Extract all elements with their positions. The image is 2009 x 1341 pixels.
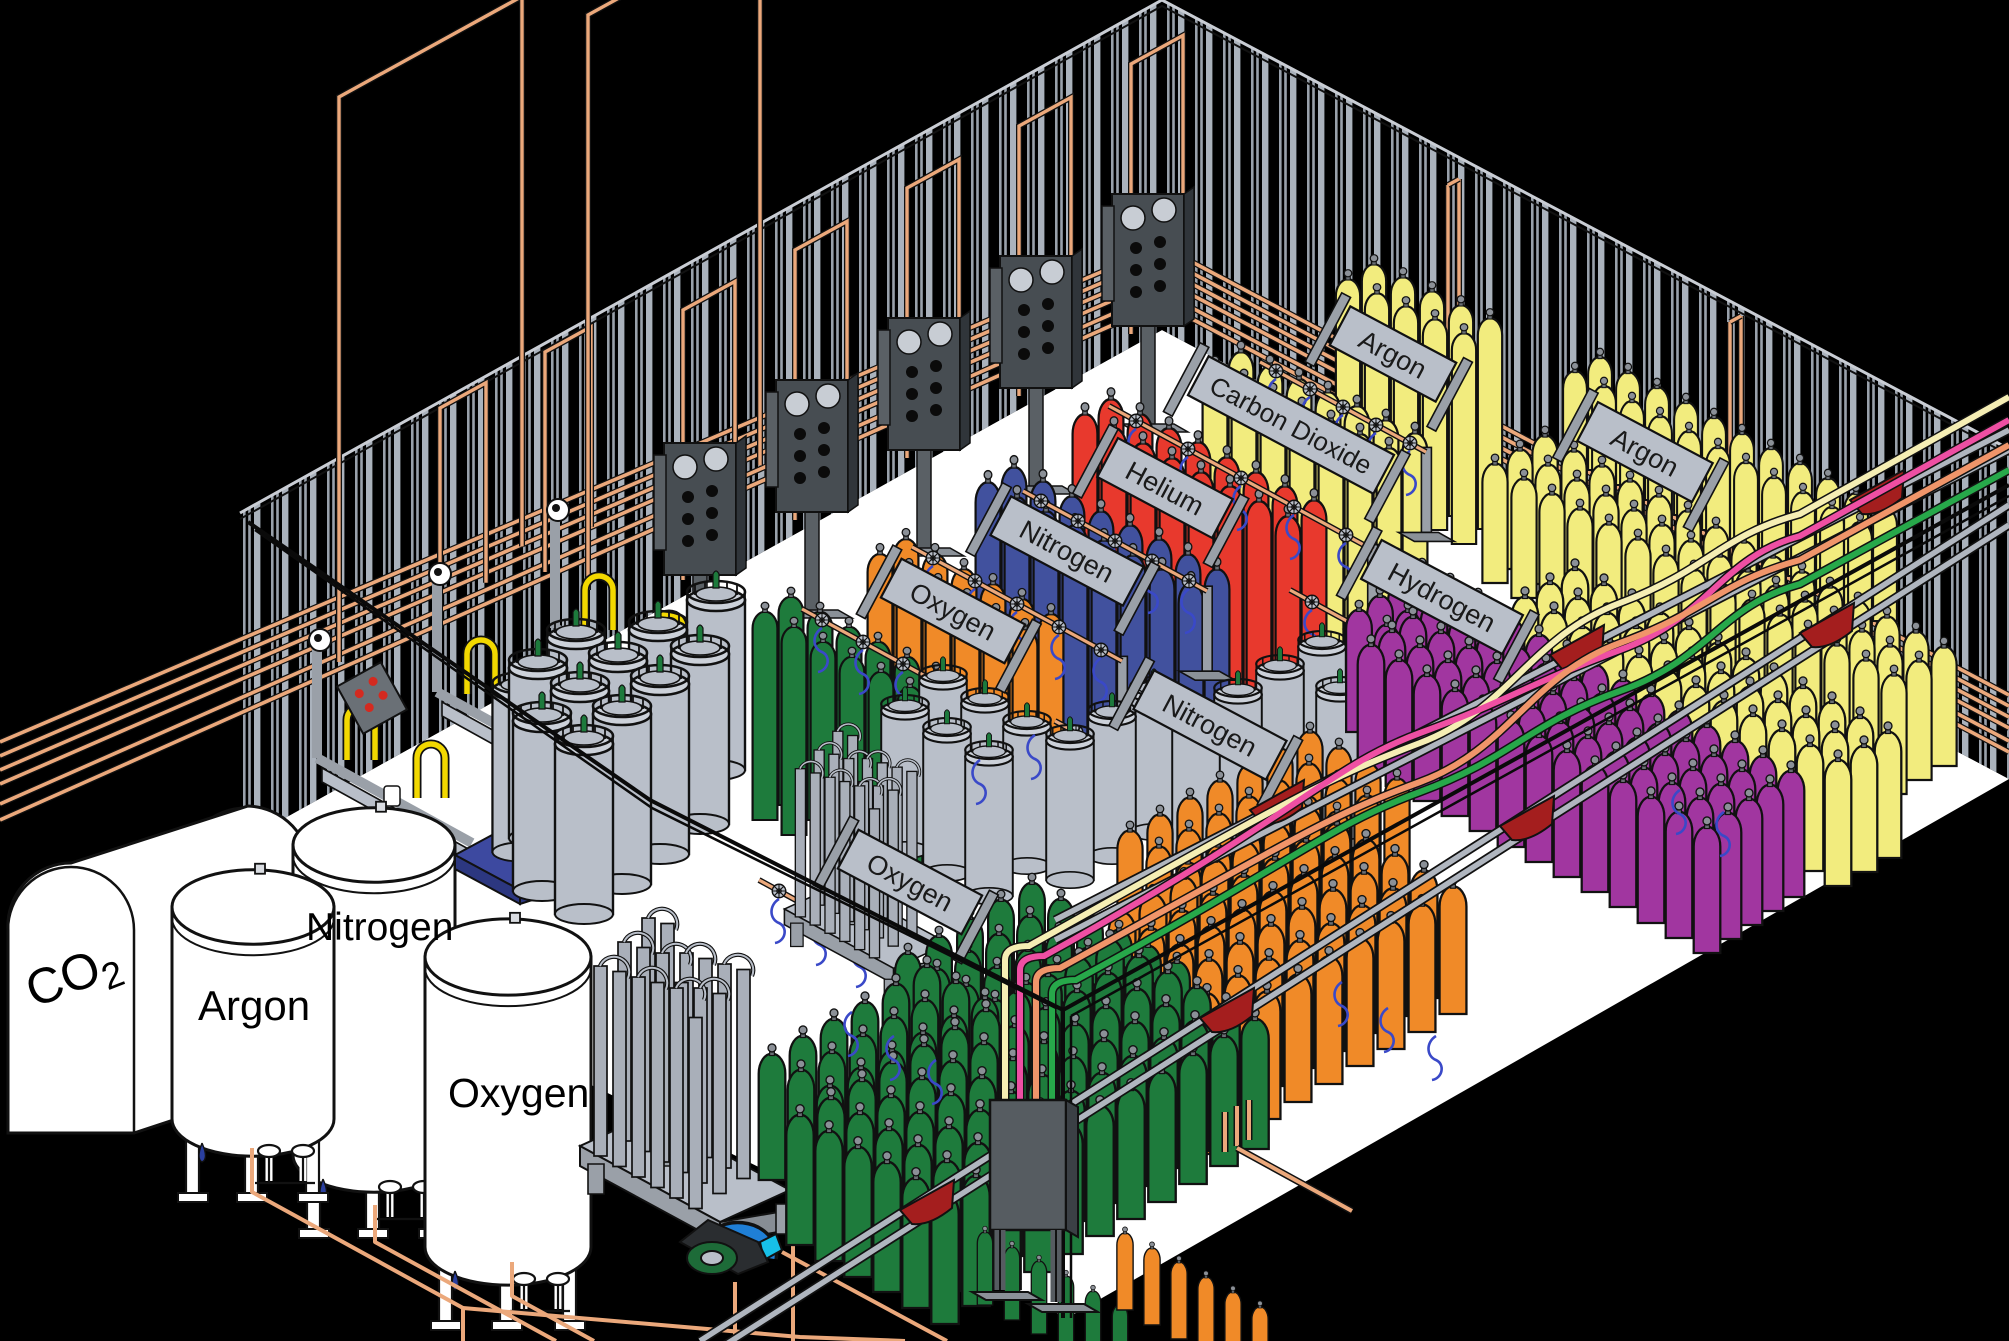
svg-text:Argon: Argon bbox=[198, 982, 310, 1029]
svg-text:Nitrogen: Nitrogen bbox=[306, 906, 453, 949]
svg-text:Oxygen: Oxygen bbox=[448, 1070, 589, 1116]
